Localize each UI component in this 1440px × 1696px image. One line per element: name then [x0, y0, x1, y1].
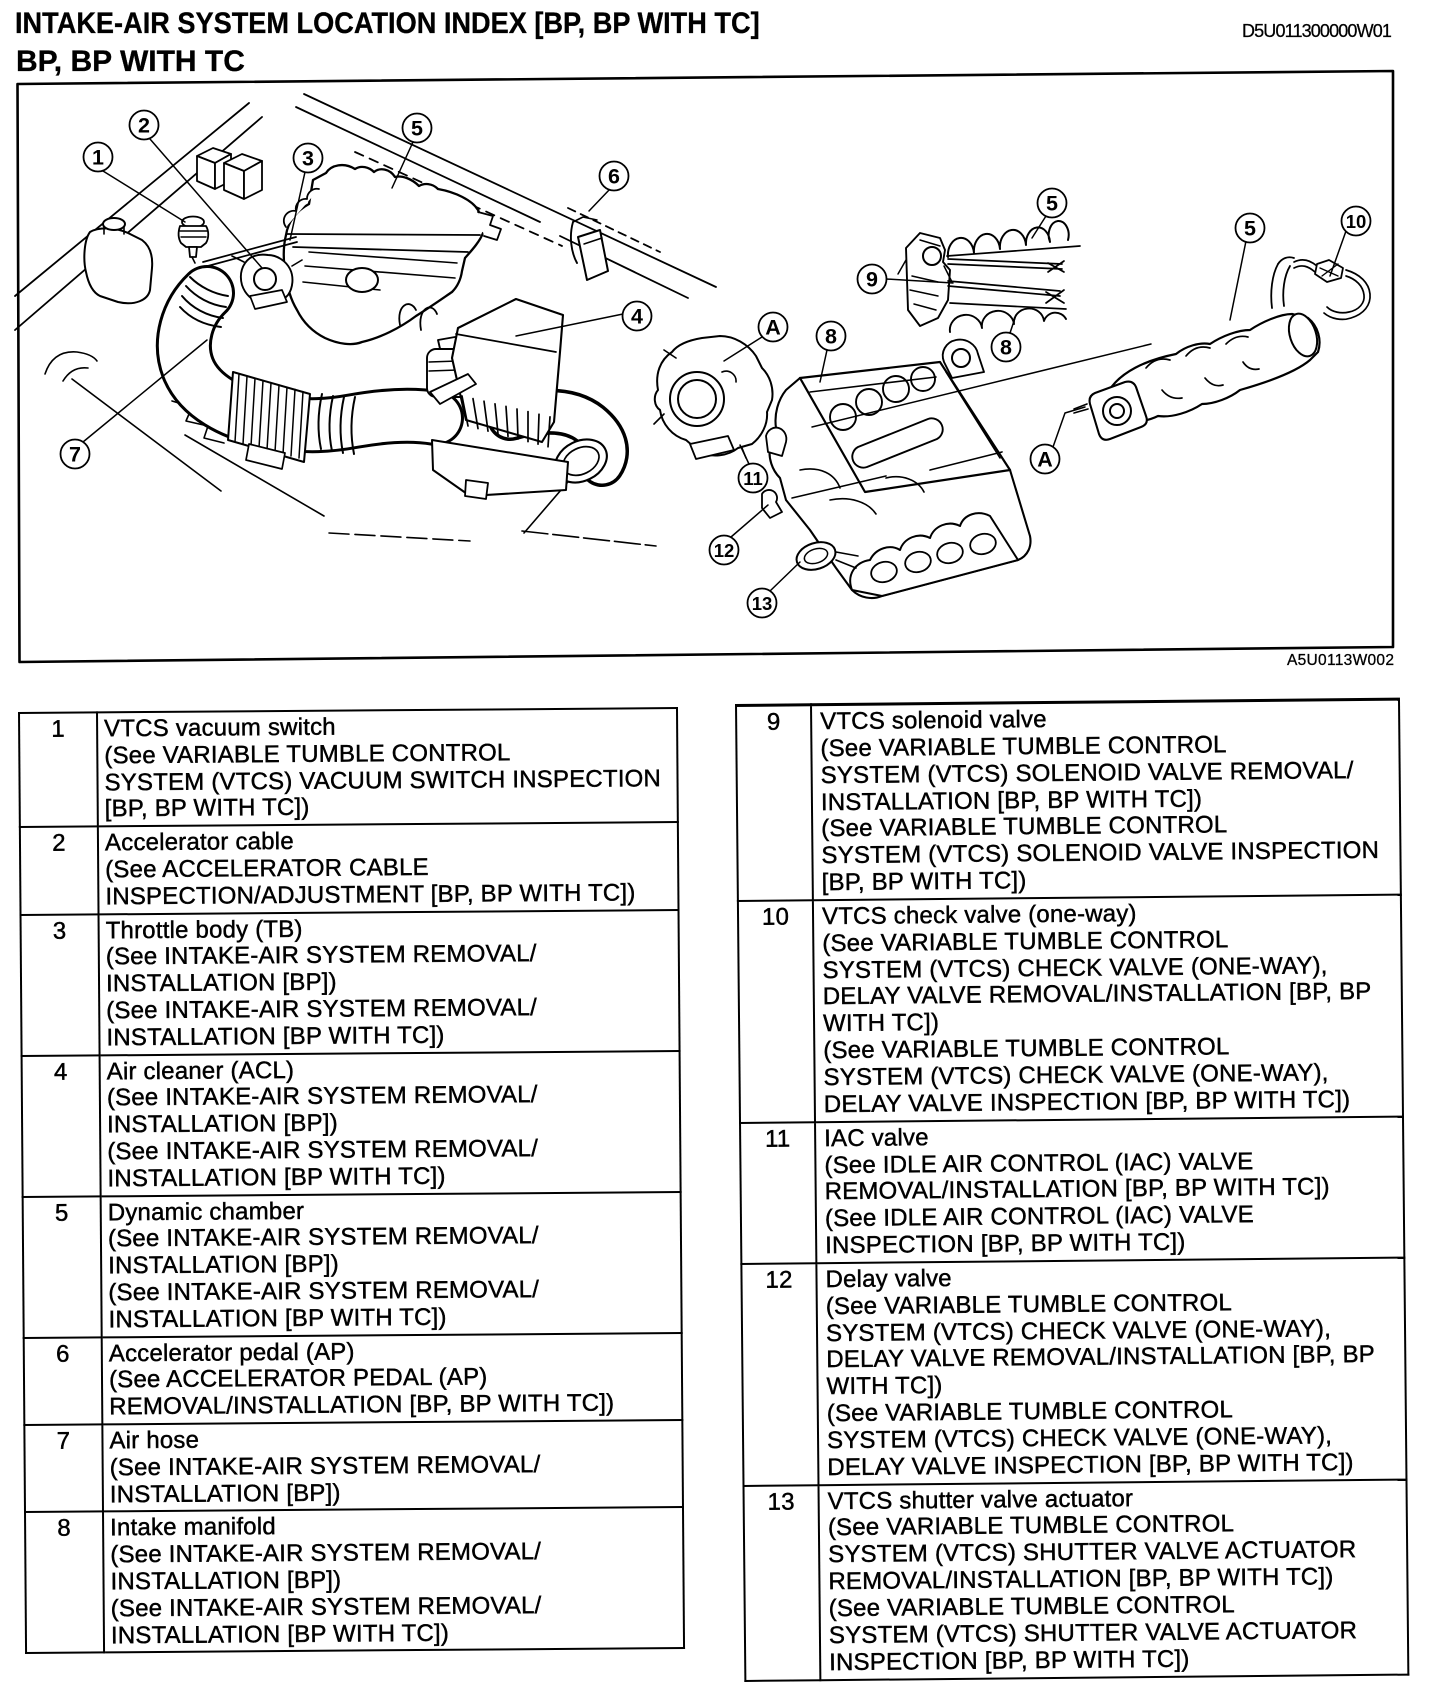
svg-text:A: A [1037, 448, 1053, 472]
svg-text:4: 4 [631, 305, 643, 329]
svg-text:11: 11 [743, 468, 763, 489]
svg-text:8: 8 [825, 325, 837, 349]
svg-text:1: 1 [92, 146, 104, 170]
svg-text:10: 10 [1346, 211, 1367, 232]
svg-text:5: 5 [1046, 192, 1058, 216]
svg-text:5: 5 [1244, 217, 1256, 241]
svg-text:5: 5 [411, 117, 423, 141]
svg-text:9: 9 [866, 268, 878, 292]
svg-text:2: 2 [138, 114, 150, 138]
svg-text:8: 8 [1000, 336, 1012, 360]
svg-text:13: 13 [752, 593, 773, 614]
svg-text:6: 6 [608, 165, 620, 189]
svg-text:7: 7 [69, 443, 81, 467]
svg-text:3: 3 [302, 147, 314, 171]
svg-text:12: 12 [714, 540, 735, 561]
svg-text:A: A [765, 316, 781, 340]
